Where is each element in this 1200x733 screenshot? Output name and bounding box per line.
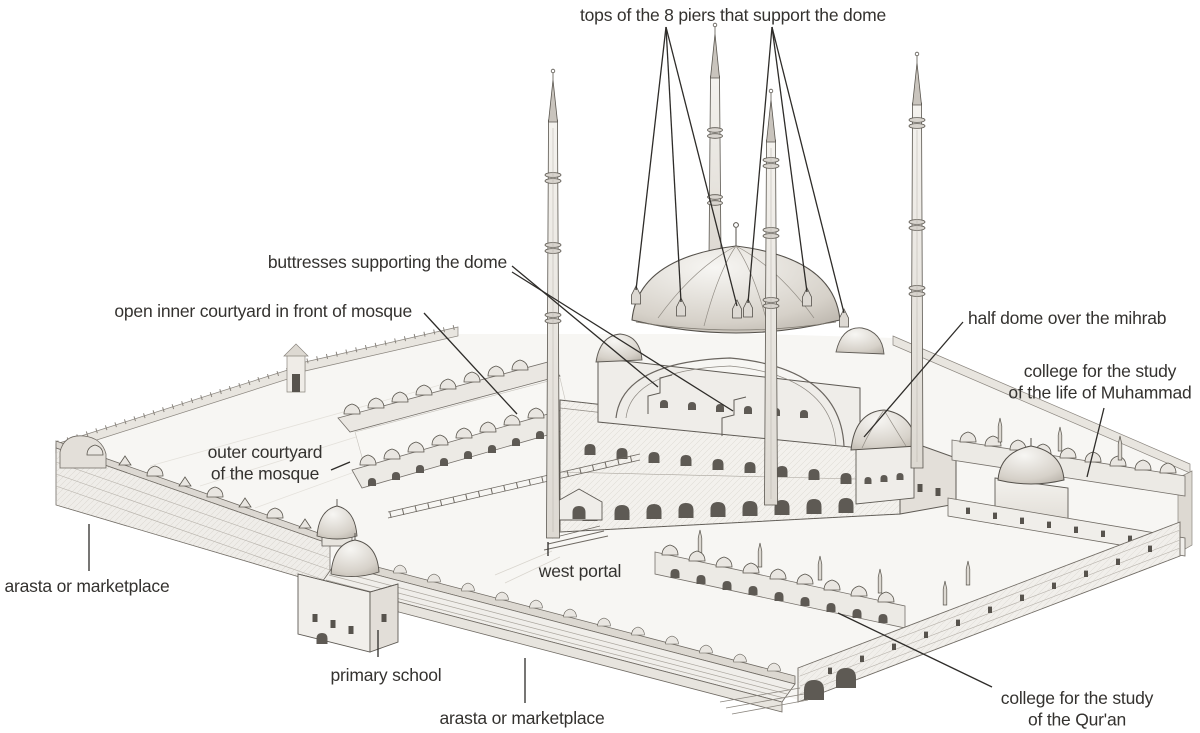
label-buttresses: buttresses supporting the dome — [268, 252, 507, 272]
gate-arch-right — [836, 668, 856, 688]
label-outer-courtyard: outer courtyardof the mosque — [208, 442, 323, 484]
dome-finial — [734, 223, 739, 228]
minaret-southwest — [545, 69, 561, 538]
mihrab-apse — [851, 410, 917, 504]
leader-line-0 — [636, 27, 666, 290]
minaret-southeast — [763, 89, 779, 505]
label-piers: tops of the 8 piers that support the dom… — [580, 5, 886, 25]
gate-arch-left — [804, 680, 824, 700]
label-half-dome: half dome over the mihrab — [968, 308, 1166, 328]
label-arasta-bottom: arasta or marketplace — [439, 708, 604, 728]
label-arasta-left: arasta or marketplace — [4, 576, 169, 596]
figure: tops of the 8 piers that support the dom… — [0, 0, 1200, 733]
label-west-portal: west portal — [538, 561, 621, 581]
gate-tower — [284, 344, 308, 392]
minaret-rear — [708, 23, 723, 258]
label-inner-courtyard: open inner courtyard in front of mosque — [114, 301, 412, 321]
minaret-northeast — [909, 52, 925, 468]
label-college-muhammad: college for the studyof the life of Muha… — [1008, 361, 1191, 403]
label-college-quran: college for the studyof the Qur'an — [1001, 688, 1154, 730]
illustration: tops of the 8 piers that support the dom… — [0, 0, 1200, 733]
leader-line-1 — [666, 27, 681, 302]
half-dome-east — [836, 328, 884, 354]
label-primary-school: primary school — [331, 665, 442, 685]
